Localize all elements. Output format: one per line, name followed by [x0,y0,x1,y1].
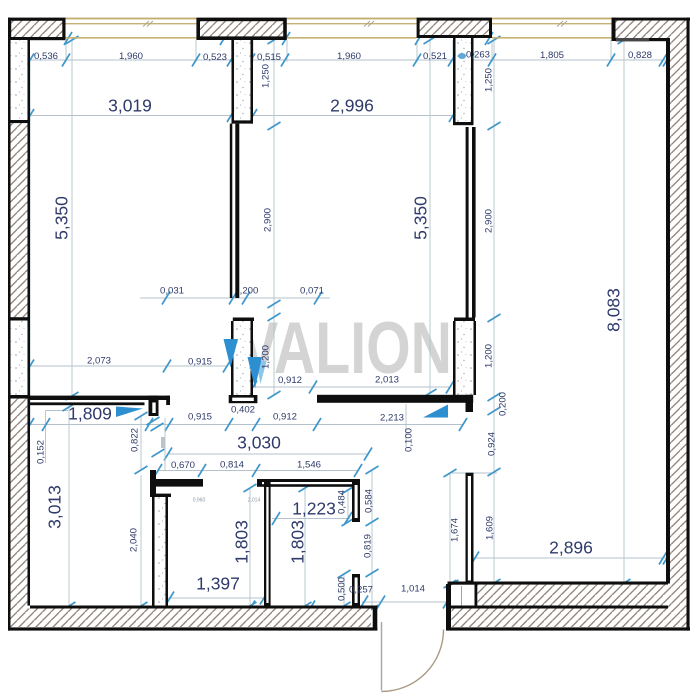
svg-text:0,152: 0,152 [36,440,47,464]
svg-text:2,896: 2,896 [549,538,593,558]
svg-text:0,515: 0,515 [257,52,281,63]
svg-text:2,013: 2,013 [375,375,399,386]
svg-text:1,609: 1,609 [485,516,496,540]
svg-text:1,805: 1,805 [540,50,564,61]
svg-text:5,350: 5,350 [52,196,72,240]
svg-text:0,912: 0,912 [278,375,302,386]
svg-text:2,213: 2,213 [380,413,404,424]
svg-text:0,819: 0,819 [363,534,374,558]
svg-text:2,040: 2,040 [129,528,140,552]
svg-text:1,250: 1,250 [261,64,272,88]
svg-text:0,521: 0,521 [423,51,447,62]
svg-text:1,397: 1,397 [196,574,240,594]
svg-text:2,073: 2,073 [87,356,111,367]
svg-text:1,803: 1,803 [232,520,252,564]
svg-text:3,030: 3,030 [237,433,281,453]
svg-text:1,200: 1,200 [484,344,495,368]
svg-text:0,500: 0,500 [337,577,348,601]
svg-text:1,674: 1,674 [450,517,461,542]
svg-text:0,814: 0,814 [220,460,245,471]
svg-text:0,402: 0,402 [231,405,255,416]
svg-text:0,263: 0,263 [466,50,490,61]
svg-text:8,083: 8,083 [604,288,624,332]
svg-text:0,828: 0,828 [628,50,652,61]
svg-text:1,546: 1,546 [297,460,321,471]
svg-text:0,031: 0,031 [160,286,184,297]
svg-text:0,584: 0,584 [364,488,375,513]
svg-text:1,014: 1,014 [401,584,426,595]
svg-text:0,915: 0,915 [188,412,212,423]
svg-text:0,924: 0,924 [487,431,498,456]
svg-text:1,960: 1,960 [337,51,361,62]
svg-text:0,912: 0,912 [273,412,297,423]
svg-text:2,900: 2,900 [263,208,274,232]
svg-text:0,100: 0,100 [404,428,415,452]
svg-text:1,223: 1,223 [292,499,336,519]
svg-text:1,803: 1,803 [288,520,308,564]
svg-text:1,960: 1,960 [119,51,143,62]
svg-text:2,996: 2,996 [330,96,374,116]
svg-text:1,809: 1,809 [68,404,112,424]
svg-text:,200: ,200 [240,286,259,297]
svg-text:0,257: 0,257 [349,585,373,596]
svg-text:2,900: 2,900 [484,209,495,233]
svg-text:0,523: 0,523 [203,52,227,63]
svg-text:3,019: 3,019 [108,96,152,116]
svg-text:3,013: 3,013 [45,485,65,529]
svg-text:0,484: 0,484 [337,489,348,514]
svg-text:0,915: 0,915 [188,357,212,368]
svg-text:0,670: 0,670 [171,460,195,471]
svg-text:0,822: 0,822 [130,428,141,452]
svg-text:2,014: 2,014 [248,497,261,503]
svg-text:0,536: 0,536 [34,51,58,62]
svg-text:5,350: 5,350 [411,196,431,240]
svg-text:VALION: VALION [240,308,452,389]
svg-text:1,200: 1,200 [261,345,272,369]
svg-text:1,250: 1,250 [484,68,495,92]
svg-text:0,960: 0,960 [193,497,206,503]
svg-text:0,071: 0,071 [300,286,324,297]
svg-text:0,200: 0,200 [498,392,509,416]
